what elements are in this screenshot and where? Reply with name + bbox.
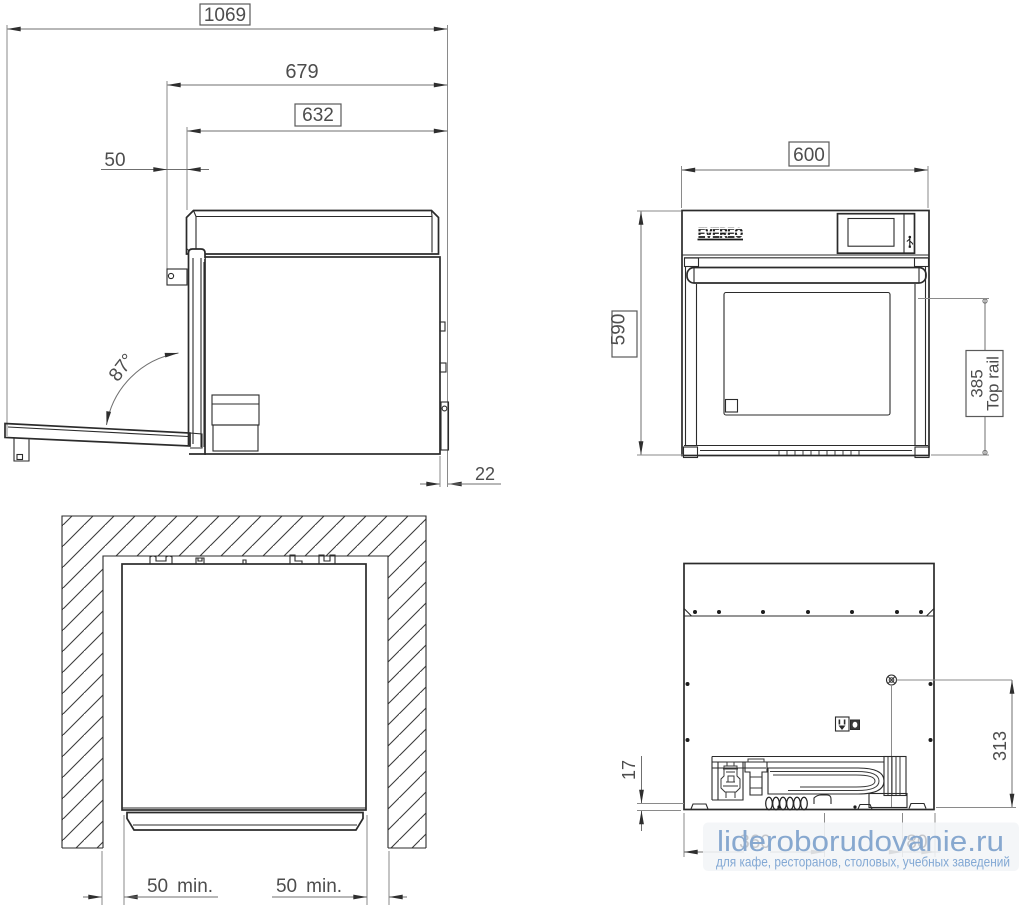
- svg-text:EVEREO: EVEREO: [698, 226, 743, 241]
- svg-text:632: 632: [302, 105, 334, 126]
- svg-text:590: 590: [609, 314, 630, 346]
- svg-text:600: 600: [793, 145, 825, 166]
- svg-text:50: 50: [104, 150, 125, 171]
- svg-text:50 min.: 50 min.: [276, 876, 342, 897]
- svg-text:313: 313: [990, 731, 1010, 761]
- svg-text:22: 22: [475, 464, 495, 484]
- svg-text:1069: 1069: [204, 5, 246, 26]
- svg-text:Top rail: Top rail: [984, 356, 1003, 411]
- svg-text:для кафе, ресторанов, столовых: для кафе, ресторанов, столовых, учебных …: [716, 854, 1010, 870]
- svg-text:679: 679: [285, 61, 318, 83]
- svg-text:17: 17: [619, 760, 639, 780]
- svg-text:50 min.: 50 min.: [147, 876, 213, 897]
